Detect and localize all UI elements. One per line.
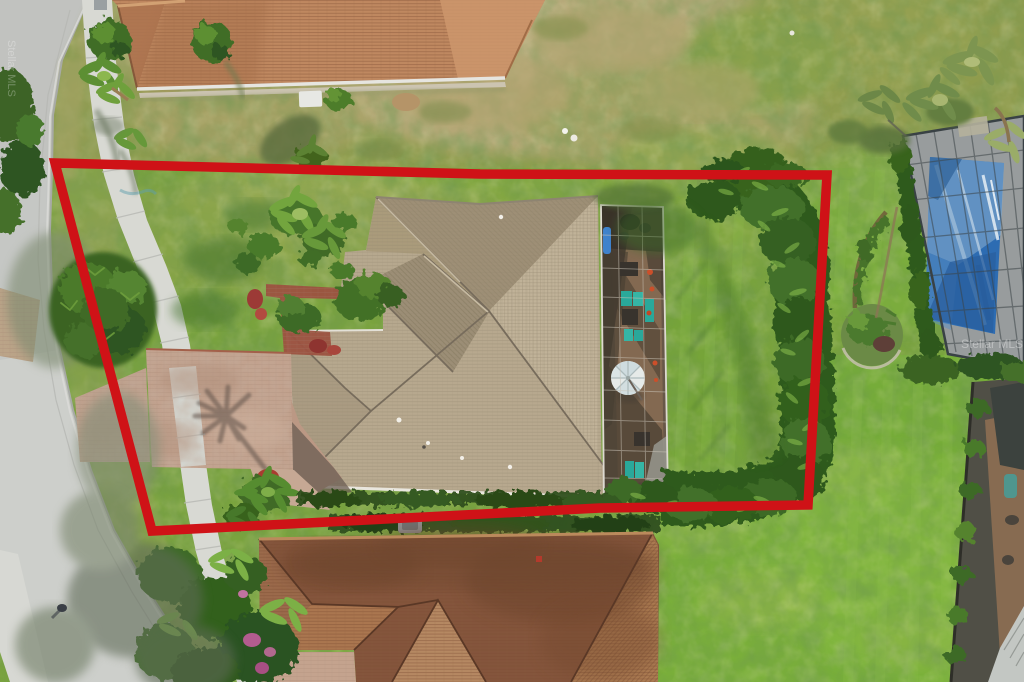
svg-text:Stellar MLS: Stellar MLS bbox=[961, 337, 1023, 351]
svg-text:Stellar MLS: Stellar MLS bbox=[5, 40, 17, 97]
